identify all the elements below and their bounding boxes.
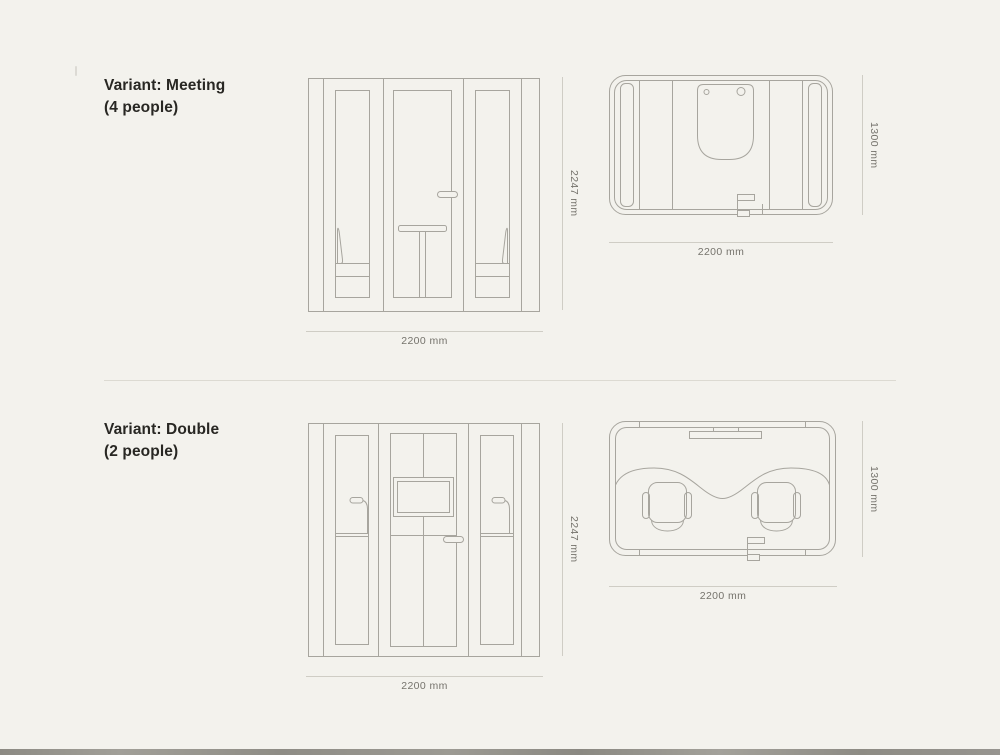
monitor-glyph bbox=[394, 478, 454, 517]
monitor-glyph bbox=[690, 432, 762, 439]
meeting-front-height-dim-line bbox=[562, 77, 563, 310]
double-front-elevation-drawing bbox=[308, 423, 540, 657]
double-top-depth-dim-label: 1300 mm bbox=[867, 421, 881, 557]
meeting-top-width-dim-line bbox=[609, 242, 833, 243]
meeting-top-width-dim-label: 2200 mm bbox=[609, 246, 833, 259]
stray-mark bbox=[75, 66, 77, 76]
variant-meeting-title: Variant: Meeting (4 people) bbox=[104, 75, 225, 119]
variant-meeting-title-line1: Variant: Meeting bbox=[104, 75, 225, 97]
double-top-width-dim-line bbox=[609, 586, 837, 587]
variant-double-title-line2: (2 people) bbox=[104, 441, 219, 463]
double-front-height-dim-line bbox=[562, 423, 563, 656]
double-front-width-dim-line bbox=[306, 676, 543, 677]
meeting-top-depth-dim-label: 1300 mm bbox=[867, 75, 881, 215]
monitor-mount-glyph bbox=[714, 428, 739, 432]
door-handle-glyph bbox=[748, 555, 760, 561]
door-handle-glyph bbox=[748, 538, 765, 544]
double-top-width-dim-label: 2200 mm bbox=[609, 590, 837, 603]
door-handle-glyph bbox=[444, 537, 464, 543]
meeting-front-elevation-drawing bbox=[308, 78, 540, 312]
double-top-depth-dim-line bbox=[862, 421, 863, 557]
meeting-top-plan-drawing bbox=[609, 75, 833, 215]
door-handle-glyph bbox=[438, 192, 458, 198]
meeting-front-width-dim-label: 2200 mm bbox=[306, 335, 543, 348]
next-section-edge bbox=[0, 749, 1000, 755]
double-front-height-dim-label: 2247 mm bbox=[567, 423, 581, 656]
booth-spec-page: Variant: Meeting (4 people) 224 bbox=[0, 0, 1000, 755]
meeting-front-height-dim-label: 2247 mm bbox=[567, 77, 581, 310]
door-handle-glyph bbox=[738, 211, 750, 217]
meeting-front-width-dim-line bbox=[306, 331, 543, 332]
variant-meeting-title-line2: (4 people) bbox=[104, 97, 225, 119]
double-top-plan-drawing bbox=[609, 421, 836, 556]
meeting-top-depth-dim-line bbox=[862, 75, 863, 215]
variant-double-title-line1: Variant: Double bbox=[104, 419, 219, 441]
door-handle-glyph bbox=[738, 195, 755, 201]
variant-double-title: Variant: Double (2 people) bbox=[104, 419, 219, 463]
section-divider bbox=[104, 380, 896, 381]
double-front-width-dim-label: 2200 mm bbox=[306, 680, 543, 693]
